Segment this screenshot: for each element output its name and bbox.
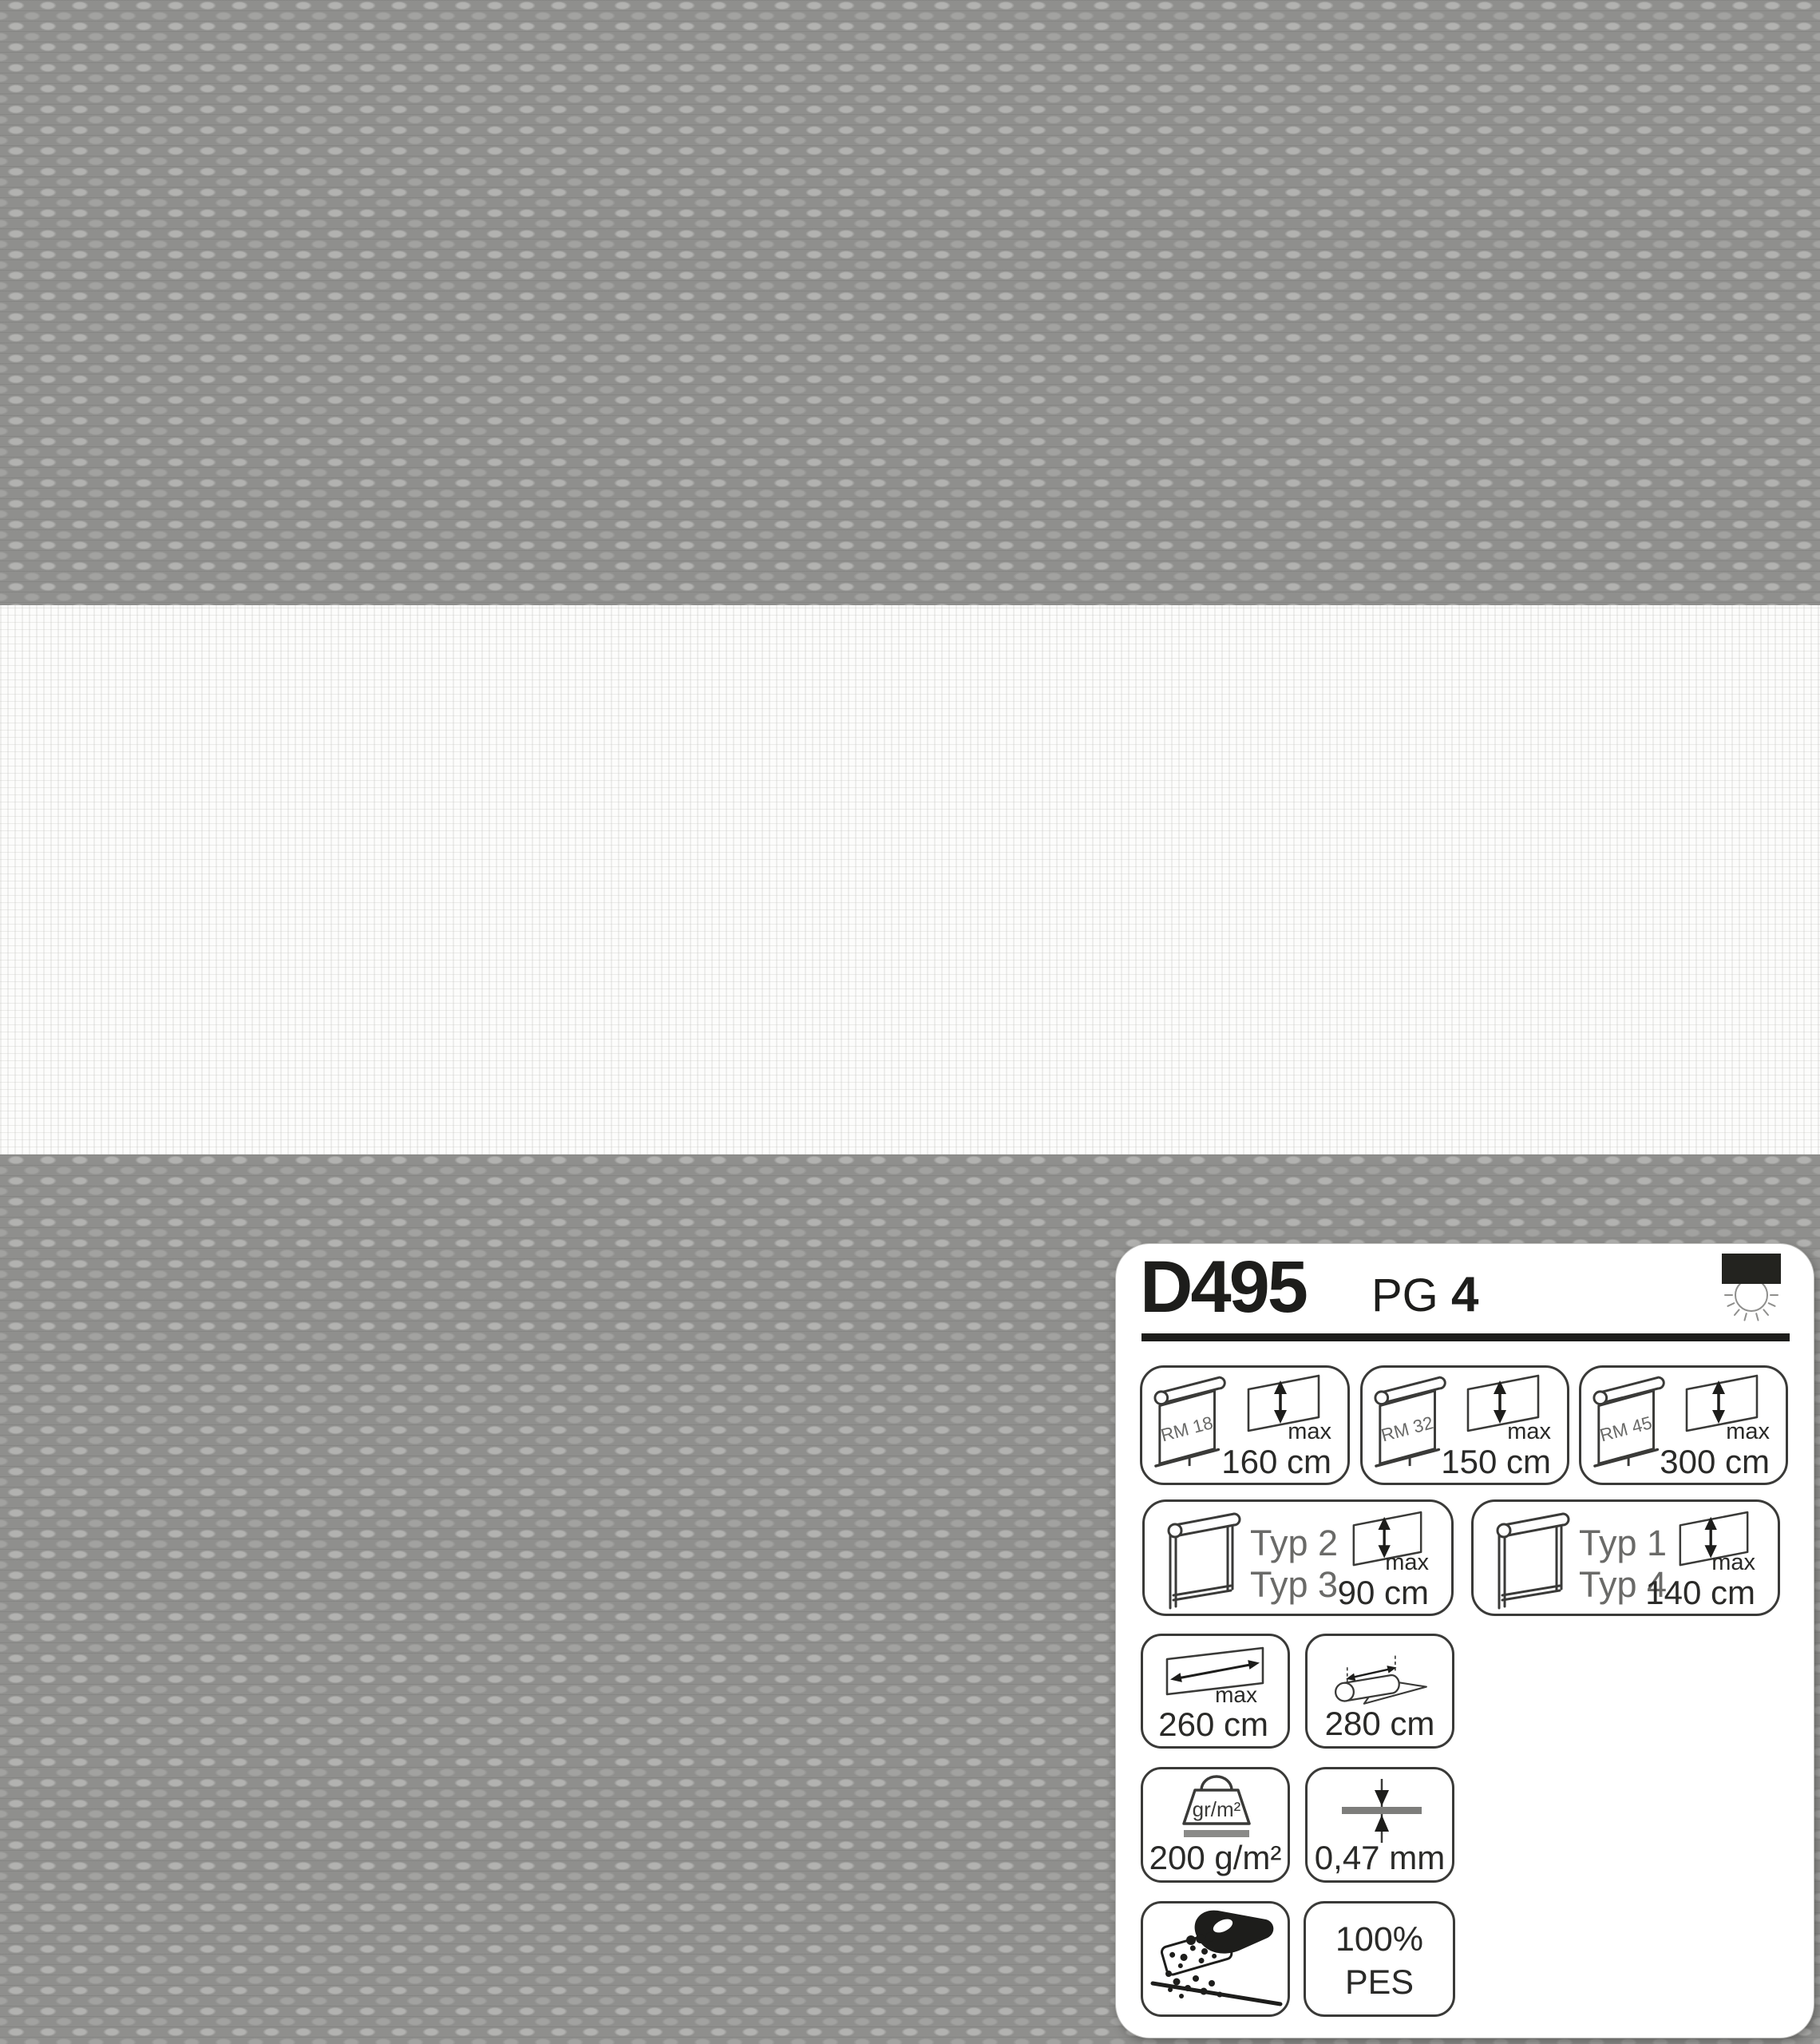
type-label-a: Typ 2 bbox=[1250, 1523, 1338, 1564]
fabric-roll-icon bbox=[1314, 1644, 1448, 1706]
weight-unit-label: gr/m² bbox=[1193, 1797, 1241, 1821]
price-group: PG 4 bbox=[1371, 1270, 1478, 1321]
blind-rails-icon bbox=[1488, 1506, 1571, 1613]
max-value: 260 cm bbox=[1143, 1707, 1268, 1742]
max-label: max bbox=[1221, 1420, 1331, 1444]
header-separator bbox=[1141, 1333, 1790, 1341]
price-group-label: PG bbox=[1371, 1270, 1438, 1321]
spec-cell-typ23: Typ 2 Typ 3 max 90 cm bbox=[1142, 1499, 1454, 1616]
max-height: max 150 cm bbox=[1441, 1420, 1551, 1480]
max-height: max 140 cm bbox=[1645, 1551, 1755, 1610]
roll-width-value: 280 cm bbox=[1308, 1706, 1452, 1741]
type-labels: Typ 2 Typ 3 bbox=[1250, 1523, 1338, 1606]
composition-line1: 100% bbox=[1306, 1918, 1453, 1961]
thickness-icon bbox=[1339, 1776, 1424, 1846]
spec-cell-weight: gr/m² 200 g/m² bbox=[1141, 1767, 1290, 1883]
fabric-texture-top bbox=[0, 0, 1820, 605]
price-group-value: 4 bbox=[1451, 1267, 1478, 1322]
spec-cell-material: 100% PES bbox=[1304, 1901, 1455, 2017]
spec-cell-rm45: RM 45 max 300 cm bbox=[1579, 1365, 1788, 1485]
max-height: max 160 cm bbox=[1221, 1420, 1331, 1480]
spec-cell-roll-width: 280 cm bbox=[1305, 1634, 1454, 1749]
sponge-clean-icon bbox=[1146, 1907, 1287, 2014]
fabric-sheer-band bbox=[0, 605, 1820, 1155]
product-code: D495 bbox=[1140, 1249, 1306, 1325]
max-label: max bbox=[1441, 1420, 1551, 1444]
weight-value: 200 g/m² bbox=[1143, 1840, 1288, 1876]
blind-rails-icon bbox=[1159, 1506, 1242, 1613]
max-value: 160 cm bbox=[1221, 1444, 1331, 1480]
spec-cell-rm18: RM 18 max 160 cm bbox=[1140, 1365, 1350, 1485]
max-height: max 90 cm bbox=[1338, 1551, 1429, 1610]
max-value: 90 cm bbox=[1338, 1575, 1429, 1610]
spec-cell-max-width: max 260 cm bbox=[1141, 1634, 1290, 1749]
max-label: max bbox=[1338, 1551, 1429, 1575]
thickness-value: 0,47 mm bbox=[1308, 1840, 1452, 1876]
max-value: 140 cm bbox=[1645, 1575, 1755, 1610]
max-label: max bbox=[1660, 1420, 1770, 1444]
max-label: max bbox=[1143, 1683, 1257, 1707]
spec-cell-rm32: RM 32 max 150 cm bbox=[1360, 1365, 1569, 1485]
spec-cell-typ14: Typ 1 Typ 4 max 140 cm bbox=[1471, 1499, 1780, 1616]
max-height: max 300 cm bbox=[1660, 1420, 1770, 1480]
max-label: max bbox=[1645, 1551, 1755, 1575]
spec-cell-cleaning bbox=[1141, 1901, 1290, 2017]
max-value: 150 cm bbox=[1441, 1444, 1551, 1480]
type-label-b: Typ 3 bbox=[1250, 1564, 1338, 1606]
max-width: max 260 cm bbox=[1143, 1683, 1268, 1742]
composition: 100% PES bbox=[1306, 1918, 1453, 2004]
composition-line2: PES bbox=[1306, 1961, 1453, 2004]
spec-panel: D495 PG 4 RM 18 bbox=[1116, 1244, 1814, 2038]
dim-out-icon bbox=[1711, 1252, 1791, 1325]
spec-cell-thickness: 0,47 mm bbox=[1305, 1767, 1454, 1883]
max-value: 300 cm bbox=[1660, 1444, 1770, 1480]
